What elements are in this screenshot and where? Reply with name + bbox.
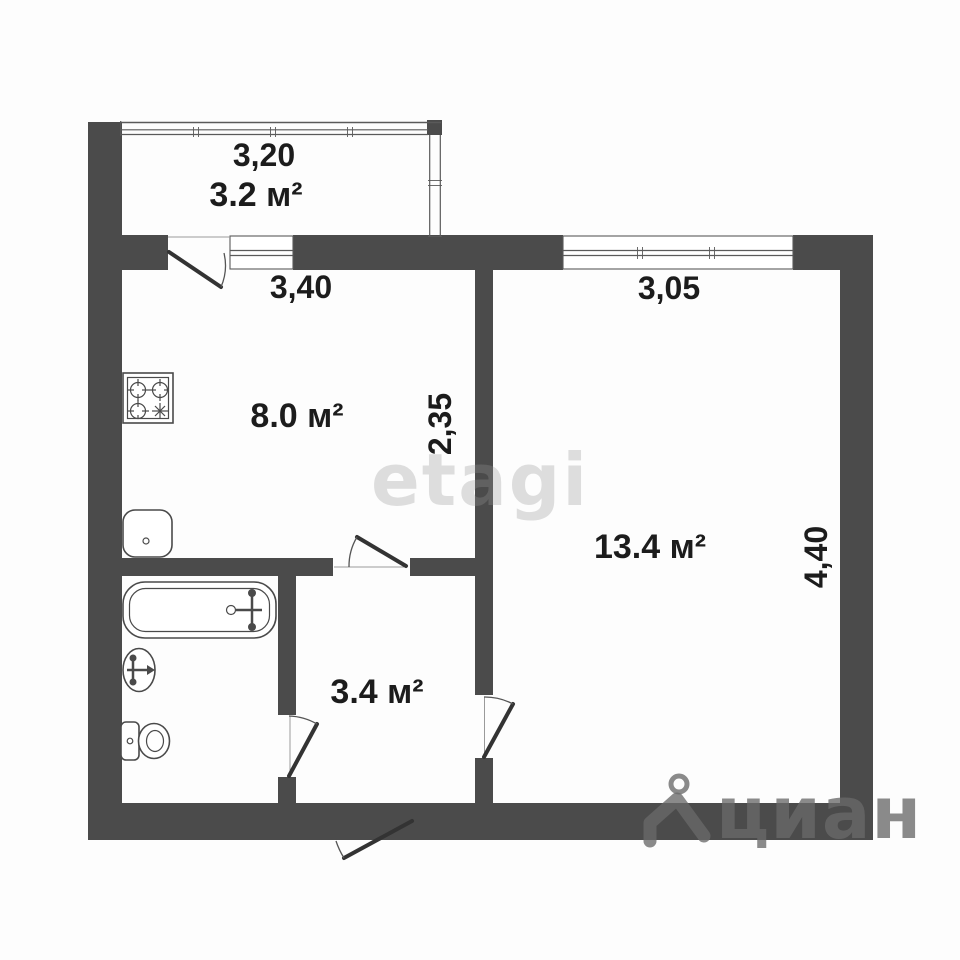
etagi-watermark: etagi <box>371 438 589 522</box>
wall-kitchen-hall-stub <box>410 558 475 576</box>
stove-icon <box>123 373 173 423</box>
kitchen-window <box>230 236 293 269</box>
wall-right <box>840 235 873 840</box>
living-room-depth-label: 4,40 <box>798 526 834 588</box>
bathroom-sink-icon <box>123 649 155 692</box>
balcony-window-ticks <box>194 127 353 137</box>
wall-bathroom-right <box>278 576 296 715</box>
cian-watermark: циан <box>650 771 922 855</box>
wall-bathroom-right-stub <box>278 777 296 803</box>
living-room-width-label: 3,05 <box>638 270 700 306</box>
wall-left <box>88 122 122 840</box>
living-room-door <box>484 697 513 757</box>
kitchen-area-label: 8.0 м² <box>250 397 343 435</box>
hallway-area-label: 3.4 м² <box>330 673 423 711</box>
cian-watermark-text: циан <box>716 771 922 855</box>
wall-kitchen-bath <box>88 558 333 576</box>
toilet-icon <box>121 722 170 760</box>
labels: 3,20 3.2 м² 3,40 3,05 8.0 м² 2,35 13.4 м… <box>209 137 834 711</box>
kitchen-width-label: 3,40 <box>270 269 332 305</box>
wall-top-left-stub <box>88 235 168 270</box>
balcony-door <box>168 237 230 287</box>
wall-top-right-stub <box>793 235 873 270</box>
bathtub-icon <box>123 582 276 638</box>
wall-top-middle <box>293 235 563 270</box>
wall-kitchen-living-stub <box>475 758 493 803</box>
living-room-window <box>563 236 793 269</box>
bathroom-door <box>289 716 317 776</box>
kitchen-sink-icon <box>123 510 172 557</box>
balcony-width-label: 3,20 <box>233 137 295 173</box>
balcony-area-label: 3.2 м² <box>209 176 302 214</box>
kitchen-depth-label: 2,35 <box>422 393 458 455</box>
kitchen-hall-door <box>334 537 406 567</box>
floor-plan: etagi циан 3,20 3.2 м² 3,40 3,05 8.0 м² … <box>0 0 960 960</box>
living-room-area-label: 13.4 м² <box>594 528 706 566</box>
etagi-watermark-text: etagi <box>371 438 589 522</box>
